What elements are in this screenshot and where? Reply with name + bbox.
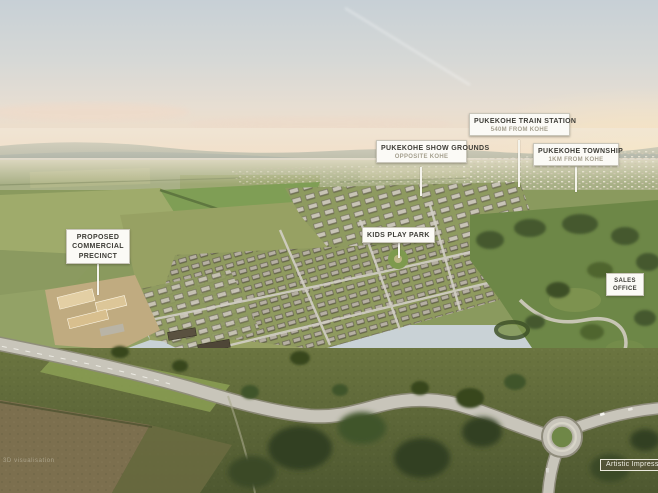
watermark: 3D visualisation <box>3 458 55 464</box>
callout-title: PROPOSED COMMERCIAL PRECINCT <box>71 233 125 261</box>
callout-kids-play-park: KIDS PLAY PARK <box>362 227 435 243</box>
callout-sales-office: SALES OFFICE <box>606 273 644 296</box>
leader-line-play-park <box>398 241 400 258</box>
callout-subtitle: OPPOSITE KOHE <box>381 154 462 160</box>
callout-township: PUKEKOHE TOWNSHIP 1KM FROM KOHE <box>533 143 619 166</box>
callout-title: PUKEKOHE SHOW GROUNDS <box>381 144 462 153</box>
callout-train-station: PUKEKOHE TRAIN STATION 540M FROM KOHE <box>469 113 570 136</box>
callout-subtitle: 1KM FROM KOHE <box>538 157 614 163</box>
callout-title: PUKEKOHE TRAIN STATION <box>474 117 565 126</box>
leader-line-commercial-precinct <box>97 263 99 295</box>
callout-show-grounds: PUKEKOHE SHOW GROUNDS OPPOSITE KOHE <box>376 140 467 163</box>
artistic-impression-badge: Artistic Impression <box>600 459 658 471</box>
callout-title: KIDS PLAY PARK <box>367 231 430 240</box>
leader-line-show-grounds <box>420 167 422 196</box>
leader-line-township <box>575 167 577 192</box>
callout-commercial-precinct: PROPOSED COMMERCIAL PRECINCT <box>66 229 130 264</box>
callout-title: SALES OFFICE <box>611 277 639 293</box>
leader-line-train-station <box>518 140 520 187</box>
callout-title: PUKEKOHE TOWNSHIP <box>538 147 614 156</box>
aerial-masterplan-render: PUKEKOHE TRAIN STATION 540M FROM KOHE PU… <box>0 0 658 493</box>
callout-subtitle: 540M FROM KOHE <box>474 127 565 133</box>
